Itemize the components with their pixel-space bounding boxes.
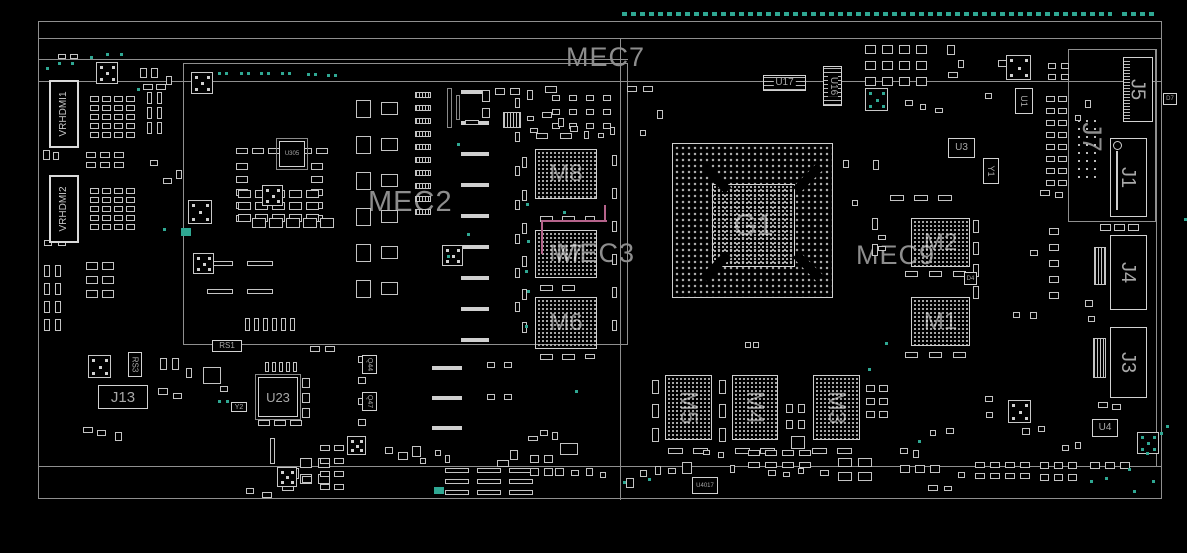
component-outline[interactable] bbox=[569, 95, 577, 101]
component-outline[interactable] bbox=[140, 68, 147, 78]
component-outline[interactable] bbox=[527, 116, 534, 121]
component-outline[interactable] bbox=[147, 122, 152, 134]
component-outline[interactable] bbox=[274, 420, 286, 426]
component-outline[interactable] bbox=[415, 183, 431, 189]
chip-G1[interactable]: G1 bbox=[672, 143, 833, 298]
component-outline[interactable] bbox=[929, 352, 942, 358]
component-outline[interactable] bbox=[890, 195, 904, 201]
component-outline[interactable] bbox=[603, 109, 611, 115]
component-J1[interactable]: J1 bbox=[1110, 138, 1147, 217]
component-outline[interactable] bbox=[300, 458, 312, 468]
component-outline[interactable] bbox=[522, 190, 527, 201]
component-outline[interactable] bbox=[858, 472, 872, 481]
component-outline[interactable] bbox=[504, 362, 512, 368]
component-outline[interactable] bbox=[522, 256, 527, 267]
component-outline[interactable] bbox=[544, 455, 553, 463]
component-outline[interactable] bbox=[102, 206, 111, 212]
component-outline[interactable] bbox=[58, 54, 66, 59]
component-outline[interactable] bbox=[515, 234, 520, 244]
component-outline[interactable] bbox=[236, 176, 248, 183]
component-outline[interactable] bbox=[356, 208, 371, 226]
component-outline[interactable] bbox=[381, 174, 398, 187]
component-outline[interactable] bbox=[1058, 168, 1067, 174]
component-outline[interactable] bbox=[415, 131, 431, 137]
component-outline[interactable] bbox=[905, 271, 918, 277]
component-outline[interactable] bbox=[100, 162, 110, 168]
component-outline[interactable] bbox=[1049, 244, 1059, 251]
component-outline[interactable] bbox=[302, 476, 312, 483]
component-outline[interactable] bbox=[947, 45, 955, 55]
component-outline[interactable] bbox=[86, 290, 98, 298]
component-outline[interactable] bbox=[612, 155, 617, 166]
component-U16[interactable]: U16 bbox=[823, 66, 842, 106]
component-RS3[interactable]: RS3 bbox=[128, 352, 142, 377]
component-outline[interactable] bbox=[44, 319, 50, 331]
component-outline[interactable] bbox=[944, 486, 952, 491]
component-outline[interactable] bbox=[236, 148, 248, 154]
component-outline[interactable] bbox=[1075, 442, 1081, 449]
component-outline[interactable] bbox=[852, 200, 858, 206]
component-U4017[interactable]: U4017 bbox=[692, 477, 718, 494]
component-outline[interactable] bbox=[415, 118, 431, 124]
component-outline[interactable] bbox=[544, 468, 553, 476]
component-outline[interactable] bbox=[584, 131, 589, 139]
component-outline[interactable] bbox=[445, 455, 450, 463]
component-outline[interactable] bbox=[44, 283, 50, 295]
component-outline[interactable] bbox=[552, 109, 560, 115]
component-outline[interactable] bbox=[263, 318, 268, 331]
component-outline[interactable] bbox=[126, 105, 135, 111]
component-outline[interactable] bbox=[126, 96, 135, 102]
component-outline[interactable] bbox=[86, 152, 96, 158]
component-outline[interactable] bbox=[279, 362, 283, 372]
component-outline[interactable] bbox=[270, 438, 275, 464]
component-outline[interactable] bbox=[1058, 108, 1067, 114]
component-outline[interactable] bbox=[612, 287, 617, 298]
component-outline[interactable] bbox=[126, 188, 135, 194]
component-outline[interactable] bbox=[482, 90, 490, 102]
component-outline[interactable] bbox=[126, 197, 135, 203]
component-outline[interactable] bbox=[1020, 462, 1030, 468]
component-outline[interactable] bbox=[843, 160, 849, 168]
component-outline[interactable] bbox=[482, 108, 490, 118]
component-outline[interactable] bbox=[55, 319, 61, 331]
component-outline[interactable] bbox=[415, 144, 431, 150]
component-outline[interactable] bbox=[585, 354, 595, 359]
component-outline[interactable] bbox=[258, 420, 270, 426]
component-outline[interactable] bbox=[1046, 108, 1055, 114]
component-outline[interactable] bbox=[990, 473, 1000, 479]
component-outline[interactable] bbox=[503, 112, 521, 128]
component-outline[interactable] bbox=[586, 468, 593, 476]
component-outline[interactable] bbox=[236, 163, 248, 170]
component-outline[interactable] bbox=[102, 96, 111, 102]
component-outline[interactable] bbox=[238, 202, 251, 210]
component-outline[interactable] bbox=[334, 484, 344, 490]
component-outline[interactable] bbox=[102, 105, 111, 111]
component-outline[interactable] bbox=[487, 362, 495, 368]
component-VRHDMI1[interactable]: VRHDMI1 bbox=[49, 80, 79, 148]
component-outline[interactable] bbox=[487, 394, 495, 400]
component-outline[interactable] bbox=[415, 209, 431, 215]
component-outline[interactable] bbox=[1058, 132, 1067, 138]
component-outline[interactable] bbox=[915, 465, 925, 473]
component-outline[interactable] bbox=[928, 485, 938, 491]
mount-hole[interactable] bbox=[1008, 400, 1031, 423]
component-outline[interactable] bbox=[586, 123, 594, 129]
component-outline[interactable] bbox=[562, 285, 575, 291]
component-outline[interactable] bbox=[958, 472, 965, 478]
component-outline[interactable] bbox=[905, 352, 918, 358]
component-outline[interactable] bbox=[254, 318, 259, 331]
component-outline[interactable] bbox=[990, 462, 1000, 468]
component-outline[interactable] bbox=[510, 450, 518, 460]
component-outline[interactable] bbox=[527, 90, 533, 100]
component-outline[interactable] bbox=[143, 84, 153, 90]
component-outline[interactable] bbox=[782, 462, 794, 468]
component-outline[interactable] bbox=[281, 318, 286, 331]
component-outline[interactable] bbox=[1061, 63, 1069, 69]
component-outline[interactable] bbox=[495, 88, 505, 95]
component-D7[interactable]: D7 bbox=[1163, 93, 1177, 105]
component-outline[interactable] bbox=[753, 342, 759, 348]
component-outline[interactable] bbox=[1085, 300, 1093, 307]
component-outline[interactable] bbox=[1058, 156, 1067, 162]
component-outline[interactable] bbox=[302, 393, 310, 403]
component-outline[interactable] bbox=[186, 368, 192, 378]
component-outline[interactable] bbox=[1046, 132, 1055, 138]
component-outline[interactable] bbox=[432, 396, 462, 400]
component-outline[interactable] bbox=[1058, 96, 1067, 102]
component-outline[interactable] bbox=[477, 479, 501, 484]
component-outline[interactable] bbox=[1068, 474, 1077, 481]
component-outline[interactable] bbox=[640, 130, 646, 136]
component-outline[interactable] bbox=[311, 176, 323, 183]
component-outline[interactable] bbox=[838, 472, 852, 481]
component-outline[interactable] bbox=[783, 472, 790, 477]
component-outline[interactable] bbox=[272, 318, 277, 331]
mount-hole-teal[interactable] bbox=[865, 88, 888, 111]
component-outline[interactable] bbox=[172, 358, 179, 370]
component-outline[interactable] bbox=[385, 447, 393, 454]
component-outline[interactable] bbox=[97, 430, 106, 436]
component-outline[interactable] bbox=[44, 301, 50, 313]
component-outline[interactable] bbox=[477, 490, 501, 495]
component-outline[interactable] bbox=[504, 394, 512, 400]
component-outline[interactable] bbox=[245, 318, 250, 331]
component-outline[interactable] bbox=[612, 320, 617, 331]
component-outline[interactable] bbox=[320, 458, 330, 464]
component-outline[interactable] bbox=[461, 276, 489, 280]
component-outline[interactable] bbox=[765, 462, 777, 468]
component-outline[interactable] bbox=[302, 378, 310, 388]
component-outline[interactable] bbox=[515, 166, 520, 176]
component-outline[interactable] bbox=[286, 362, 290, 372]
component-outline[interactable] bbox=[798, 420, 805, 429]
component-outline[interactable] bbox=[626, 478, 634, 488]
component-outline[interactable] bbox=[652, 428, 659, 442]
component-outline[interactable] bbox=[986, 412, 993, 418]
component-outline[interactable] bbox=[114, 105, 123, 111]
component-outline[interactable] bbox=[435, 450, 441, 456]
component-outline[interactable] bbox=[147, 92, 152, 104]
component-outline[interactable] bbox=[1030, 250, 1038, 256]
component-outline[interactable] bbox=[837, 448, 852, 454]
component-outline[interactable] bbox=[1046, 180, 1055, 186]
component-outline[interactable] bbox=[53, 152, 59, 160]
component-U17[interactable]: U17 bbox=[763, 75, 806, 91]
component-outline[interactable] bbox=[465, 120, 479, 125]
component-outline[interactable] bbox=[43, 150, 50, 160]
mount-hole[interactable] bbox=[277, 467, 297, 487]
component-outline[interactable] bbox=[791, 436, 805, 449]
component-outline[interactable] bbox=[879, 398, 888, 405]
component-outline[interactable] bbox=[126, 224, 135, 230]
component-outline[interactable] bbox=[126, 114, 135, 120]
component-outline[interactable] bbox=[930, 465, 940, 473]
component-outline[interactable] bbox=[627, 86, 637, 92]
component-outline[interactable] bbox=[916, 45, 927, 54]
chip-M8[interactable]: M8 bbox=[535, 149, 597, 199]
component-outline[interactable] bbox=[558, 118, 564, 127]
component-outline[interactable] bbox=[157, 107, 162, 119]
component-outline[interactable] bbox=[1090, 462, 1100, 469]
component-U4[interactable]: U4 bbox=[1092, 419, 1118, 437]
component-outline[interactable] bbox=[70, 54, 78, 59]
component-outline[interactable] bbox=[668, 468, 676, 474]
component-outline[interactable] bbox=[358, 377, 366, 384]
component-outline[interactable] bbox=[905, 100, 913, 106]
component-outline[interactable] bbox=[356, 100, 371, 118]
component-outline[interactable] bbox=[238, 214, 251, 222]
component-outline[interactable] bbox=[899, 45, 910, 54]
component-outline[interactable] bbox=[150, 160, 158, 166]
component-outline[interactable] bbox=[655, 466, 661, 475]
component-outline[interactable] bbox=[420, 458, 426, 464]
component-RS1[interactable]: RS1 bbox=[212, 340, 242, 352]
component-outline[interactable] bbox=[265, 362, 269, 372]
component-outline[interactable] bbox=[913, 450, 919, 458]
mount-hole[interactable] bbox=[96, 62, 118, 84]
component-outline[interactable] bbox=[114, 206, 123, 212]
component-outline[interactable] bbox=[102, 224, 111, 230]
component-outline[interactable] bbox=[272, 362, 276, 372]
component-outline[interactable] bbox=[920, 104, 926, 110]
component-outline[interactable] bbox=[985, 396, 993, 402]
component-outline[interactable] bbox=[916, 61, 927, 70]
component-outline[interactable] bbox=[515, 98, 520, 108]
component-outline[interactable] bbox=[598, 133, 604, 138]
component-outline[interactable] bbox=[560, 443, 578, 455]
component-outline[interactable] bbox=[102, 132, 111, 138]
component-outline[interactable] bbox=[1046, 156, 1055, 162]
chip-M7[interactable]: M7 bbox=[535, 230, 597, 278]
component-outline[interactable] bbox=[1114, 224, 1125, 231]
component-outline[interactable] bbox=[1049, 228, 1059, 235]
component-outline[interactable] bbox=[973, 220, 979, 233]
component-outline[interactable] bbox=[882, 45, 893, 54]
component-outline[interactable] bbox=[1054, 462, 1063, 469]
component-outline[interactable] bbox=[55, 301, 61, 313]
component-outline[interactable] bbox=[1046, 168, 1055, 174]
component-outline[interactable] bbox=[1049, 276, 1059, 283]
component-outline[interactable] bbox=[356, 280, 371, 298]
component-outline[interactable] bbox=[461, 183, 489, 187]
component-outline[interactable] bbox=[262, 492, 272, 498]
component-outline[interactable] bbox=[1020, 473, 1030, 479]
component-outline[interactable] bbox=[899, 61, 910, 70]
component-outline[interactable] bbox=[290, 318, 295, 331]
component-outline[interactable] bbox=[1030, 312, 1037, 319]
component-outline[interactable] bbox=[445, 479, 469, 484]
component-outline[interactable] bbox=[571, 470, 579, 476]
component-outline[interactable] bbox=[552, 432, 558, 440]
component-outline[interactable] bbox=[509, 490, 533, 495]
component-outline[interactable] bbox=[461, 152, 489, 156]
component-outline[interactable] bbox=[765, 450, 777, 456]
component-outline[interactable] bbox=[515, 302, 520, 312]
component-outline[interactable] bbox=[643, 86, 653, 92]
component-outline[interactable] bbox=[1112, 404, 1121, 410]
component-outline[interactable] bbox=[958, 60, 964, 68]
mount-hole[interactable] bbox=[1006, 55, 1031, 80]
component-outline[interactable] bbox=[873, 160, 879, 170]
component-outline[interactable] bbox=[151, 68, 158, 78]
component-outline[interactable] bbox=[878, 235, 886, 240]
component-outline[interactable] bbox=[102, 188, 111, 194]
component-outline[interactable] bbox=[1040, 474, 1049, 481]
component-outline[interactable] bbox=[102, 276, 114, 284]
component-outline[interactable] bbox=[1046, 120, 1055, 126]
component-U23[interactable]: U23 bbox=[258, 377, 298, 417]
component-outline[interactable] bbox=[461, 214, 489, 218]
component-outline[interactable] bbox=[560, 133, 572, 139]
component-outline[interactable] bbox=[163, 178, 172, 184]
component-outline[interactable] bbox=[320, 218, 334, 228]
component-outline[interactable] bbox=[176, 170, 182, 179]
component-outline[interactable] bbox=[114, 215, 123, 221]
component-outline[interactable] bbox=[334, 445, 344, 451]
component-outline[interactable] bbox=[682, 462, 692, 474]
component-outline[interactable] bbox=[157, 92, 162, 104]
component-outline[interactable] bbox=[102, 197, 111, 203]
component-U1[interactable]: U1 bbox=[1015, 88, 1033, 114]
component-outline[interactable] bbox=[445, 490, 469, 495]
mount-hole[interactable] bbox=[191, 72, 213, 94]
component-outline[interactable] bbox=[540, 430, 548, 436]
component-outline[interactable] bbox=[114, 162, 124, 168]
component-VRHDMI2[interactable]: VRHDMI2 bbox=[49, 175, 79, 243]
component-outline[interactable] bbox=[1085, 100, 1091, 108]
component-outline[interactable] bbox=[102, 215, 111, 221]
mount-hole[interactable] bbox=[347, 436, 366, 455]
component-outline[interactable] bbox=[381, 138, 398, 151]
component-outline[interactable] bbox=[269, 218, 283, 228]
component-outline[interactable] bbox=[900, 448, 908, 454]
component-outline[interactable] bbox=[1068, 462, 1077, 469]
component-outline[interactable] bbox=[914, 195, 928, 201]
component-outline[interactable] bbox=[286, 218, 300, 228]
component-outline[interactable] bbox=[86, 162, 96, 168]
component-outline[interactable] bbox=[865, 45, 876, 54]
component-outline[interactable] bbox=[415, 105, 431, 111]
component-Q44[interactable]: Q44 bbox=[362, 355, 377, 374]
component-outline[interactable] bbox=[1055, 192, 1063, 198]
component-outline[interactable] bbox=[812, 448, 827, 454]
component-outline[interactable] bbox=[114, 123, 123, 129]
component-outline[interactable] bbox=[879, 385, 888, 392]
component-outline[interactable] bbox=[432, 426, 462, 430]
chip-M3[interactable]: M3 bbox=[813, 375, 860, 440]
component-Q47[interactable]: Q47 bbox=[362, 392, 377, 411]
component-outline[interactable] bbox=[900, 465, 910, 473]
component-outline[interactable] bbox=[114, 132, 123, 138]
component-Y2[interactable]: Y2 bbox=[231, 402, 247, 412]
component-outline[interactable] bbox=[1046, 144, 1055, 150]
component-outline[interactable] bbox=[102, 290, 114, 298]
component-outline[interactable] bbox=[522, 223, 527, 234]
component-outline[interactable] bbox=[461, 307, 489, 311]
component-outline[interactable] bbox=[522, 157, 527, 168]
component-outline[interactable] bbox=[306, 202, 319, 210]
component-outline[interactable] bbox=[1040, 462, 1049, 469]
mount-hole[interactable] bbox=[262, 185, 283, 206]
component-outline[interactable] bbox=[703, 450, 710, 455]
component-outline[interactable] bbox=[320, 484, 330, 490]
component-outline[interactable] bbox=[865, 61, 876, 70]
component-outline[interactable] bbox=[1058, 180, 1067, 186]
component-outline[interactable] bbox=[1046, 96, 1055, 102]
component-outline[interactable] bbox=[668, 448, 683, 454]
component-outline[interactable] bbox=[1048, 63, 1056, 69]
component-outline[interactable] bbox=[799, 450, 811, 456]
component-outline[interactable] bbox=[398, 452, 408, 460]
component-outline[interactable] bbox=[748, 450, 760, 456]
chip-M4[interactable]: M4 bbox=[732, 375, 778, 440]
component-outline[interactable] bbox=[540, 285, 553, 291]
component-outline[interactable] bbox=[1054, 474, 1063, 481]
component-outline[interactable] bbox=[719, 428, 726, 442]
component-outline[interactable] bbox=[102, 114, 111, 120]
component-outline[interactable] bbox=[381, 246, 398, 259]
component-outline[interactable] bbox=[1005, 462, 1015, 468]
component-outline[interactable] bbox=[1058, 120, 1067, 126]
component-outline[interactable] bbox=[86, 276, 98, 284]
component-outline[interactable] bbox=[1088, 316, 1095, 322]
component-outline[interactable] bbox=[975, 462, 985, 468]
component-outline[interactable] bbox=[510, 88, 520, 95]
component-outline[interactable] bbox=[114, 96, 123, 102]
component-outline[interactable] bbox=[157, 122, 162, 134]
component-outline[interactable] bbox=[1058, 144, 1067, 150]
component-outline[interactable] bbox=[929, 271, 942, 277]
component-outline[interactable] bbox=[872, 218, 878, 230]
component-outline[interactable] bbox=[657, 110, 663, 119]
component-outline[interactable] bbox=[509, 479, 533, 484]
component-outline[interactable] bbox=[515, 132, 520, 142]
component-outline[interactable] bbox=[569, 109, 577, 115]
component-outline[interactable] bbox=[90, 224, 99, 230]
component-outline[interactable] bbox=[748, 462, 760, 468]
component-J13[interactable]: J13 bbox=[98, 385, 148, 409]
component-Y1[interactable]: Y1 bbox=[983, 158, 999, 184]
component-outline[interactable] bbox=[381, 282, 398, 295]
component-outline[interactable] bbox=[1098, 402, 1108, 408]
component-outline[interactable] bbox=[865, 77, 876, 86]
component-outline[interactable] bbox=[320, 471, 330, 477]
component-outline[interactable] bbox=[1022, 428, 1030, 435]
component-outline[interactable] bbox=[1105, 462, 1115, 469]
